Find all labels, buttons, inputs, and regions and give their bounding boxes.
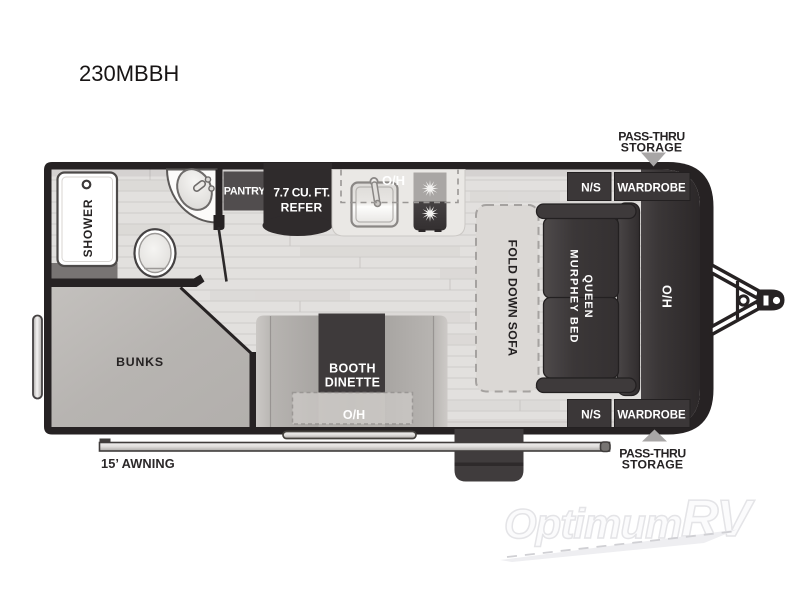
svg-text:STORAGE: STORAGE (622, 458, 683, 472)
svg-text:REFER: REFER (281, 201, 323, 215)
svg-text:O/H: O/H (660, 285, 674, 308)
svg-text:230MBBH: 230MBBH (79, 61, 179, 86)
svg-text:STORAGE: STORAGE (621, 141, 682, 155)
svg-text:WARDROBE: WARDROBE (617, 410, 686, 422)
svg-text:FOLD DOWN SOFA: FOLD DOWN SOFA (506, 240, 520, 357)
svg-text:BUNKS: BUNKS (116, 355, 164, 369)
svg-text:N/S: N/S (581, 181, 601, 195)
svg-text:DINETTE: DINETTE (325, 376, 381, 390)
svg-text:QUEEN: QUEEN (582, 274, 594, 318)
svg-text:7.7 CU. FT.: 7.7 CU. FT. (273, 186, 329, 200)
svg-text:15’ AWNING: 15’ AWNING (101, 456, 175, 471)
svg-text:BOOTH: BOOTH (329, 362, 376, 376)
svg-text:PANTRY: PANTRY (224, 186, 266, 198)
svg-text:MURPHEY BED: MURPHEY BED (568, 249, 580, 343)
svg-text:O/H: O/H (382, 173, 405, 188)
svg-text:N/S: N/S (581, 408, 601, 422)
svg-text:WARDROBE: WARDROBE (617, 183, 686, 195)
svg-text:SHOWER: SHOWER (81, 199, 95, 258)
svg-text:O/H: O/H (343, 408, 365, 422)
